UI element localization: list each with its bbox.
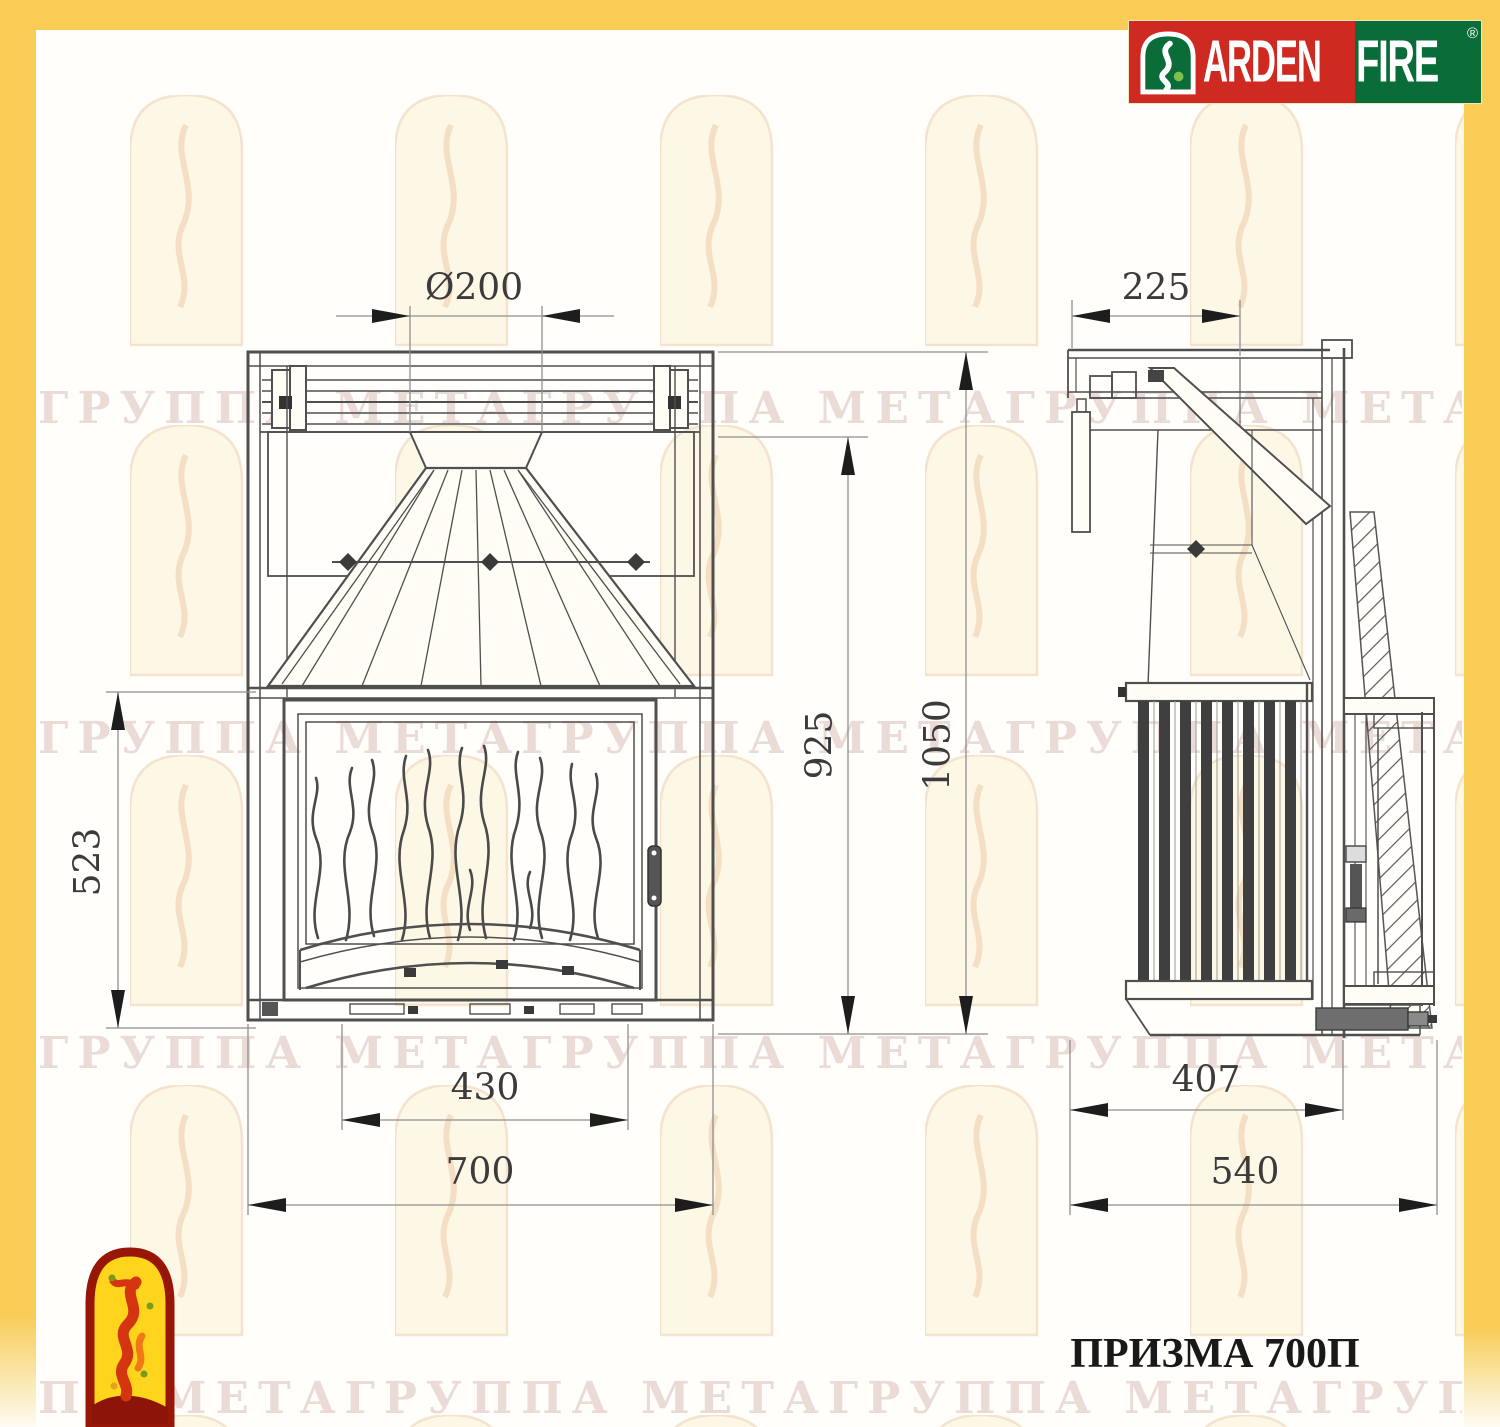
brand-logo-left-panel: ARDEN [1129, 21, 1355, 103]
dimension-firebox-height: 523 [68, 828, 109, 897]
brand-logo-right-panel: FIRE ® [1355, 21, 1481, 103]
dimension-body-depth: 407 [1172, 1060, 1241, 1101]
dimension-total-width: 700 [446, 1152, 515, 1193]
model-title: ПРИЗМА 700П [1030, 1330, 1400, 1378]
dimension-flue-diameter: Ø200 [425, 268, 523, 309]
page: ГРУППА МЕТАГРУППА МЕТАГРУППА МЕТАГРУППА … [0, 0, 1500, 1427]
registered-mark: ® [1467, 25, 1478, 42]
brand-arch-icon [1139, 29, 1197, 95]
mascot-emblem [84, 1244, 176, 1427]
technical-drawing [0, 0, 1500, 1427]
dimension-total-depth: 540 [1211, 1152, 1280, 1193]
dimension-total-height: 1050 [918, 699, 959, 791]
dimension-top-depth: 225 [1122, 268, 1191, 309]
brand-name-right: FIRE [1356, 19, 1438, 105]
frame-band-left [0, 0, 36, 1427]
dimension-collar-height: 925 [800, 711, 841, 780]
brand-logo: ARDEN FIRE ® [1128, 20, 1482, 104]
dimension-opening-width: 430 [451, 1068, 520, 1109]
brand-name-left: ARDEN [1203, 19, 1321, 105]
frame-band-right [1464, 0, 1500, 1427]
